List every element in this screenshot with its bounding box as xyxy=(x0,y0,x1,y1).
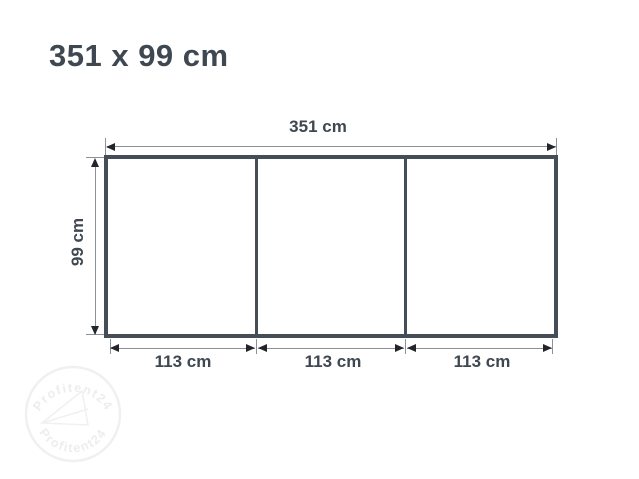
arrow-right-icon xyxy=(543,344,552,352)
segment-label-2: 113 cm xyxy=(305,352,362,372)
dim-total-width-label: 351 cm xyxy=(289,117,347,137)
dim-line-total-width xyxy=(107,146,556,147)
segment-label-1: 113 cm xyxy=(155,352,212,372)
arrow-left-icon xyxy=(110,344,119,352)
watermark-text-top: Profitent24 xyxy=(30,381,116,414)
dim-line-segment-3 xyxy=(407,348,552,349)
arrow-down-icon xyxy=(91,326,99,335)
extension-line-bottom-3 xyxy=(405,339,406,354)
segment-label-3: 113 cm xyxy=(454,352,511,372)
extension-line-bottom-2 xyxy=(256,339,257,354)
page-title: 351 x 99 cm xyxy=(49,38,229,74)
arrow-left-icon xyxy=(258,344,267,352)
extension-line-top-right xyxy=(556,138,557,155)
panel-divider-2 xyxy=(404,159,407,334)
watermark-text-bottom: Profitent24 xyxy=(36,426,109,455)
arrow-left-icon xyxy=(106,143,115,151)
panel-divider-1 xyxy=(255,159,258,334)
extension-line-bottom-4 xyxy=(552,339,553,354)
arrow-right-icon xyxy=(246,344,255,352)
watermark-logo: Profitent24 Profitent24 xyxy=(22,363,124,465)
dim-line-segment-2 xyxy=(258,348,404,349)
arrow-right-icon xyxy=(395,344,404,352)
arrow-up-icon xyxy=(91,158,99,167)
arrow-right-icon xyxy=(547,143,556,151)
arrow-left-icon xyxy=(407,344,416,352)
dim-height-label: 99 cm xyxy=(68,218,88,266)
dim-line-segment-1 xyxy=(111,348,255,349)
panel-frame xyxy=(104,155,558,338)
dim-line-height xyxy=(95,160,96,335)
